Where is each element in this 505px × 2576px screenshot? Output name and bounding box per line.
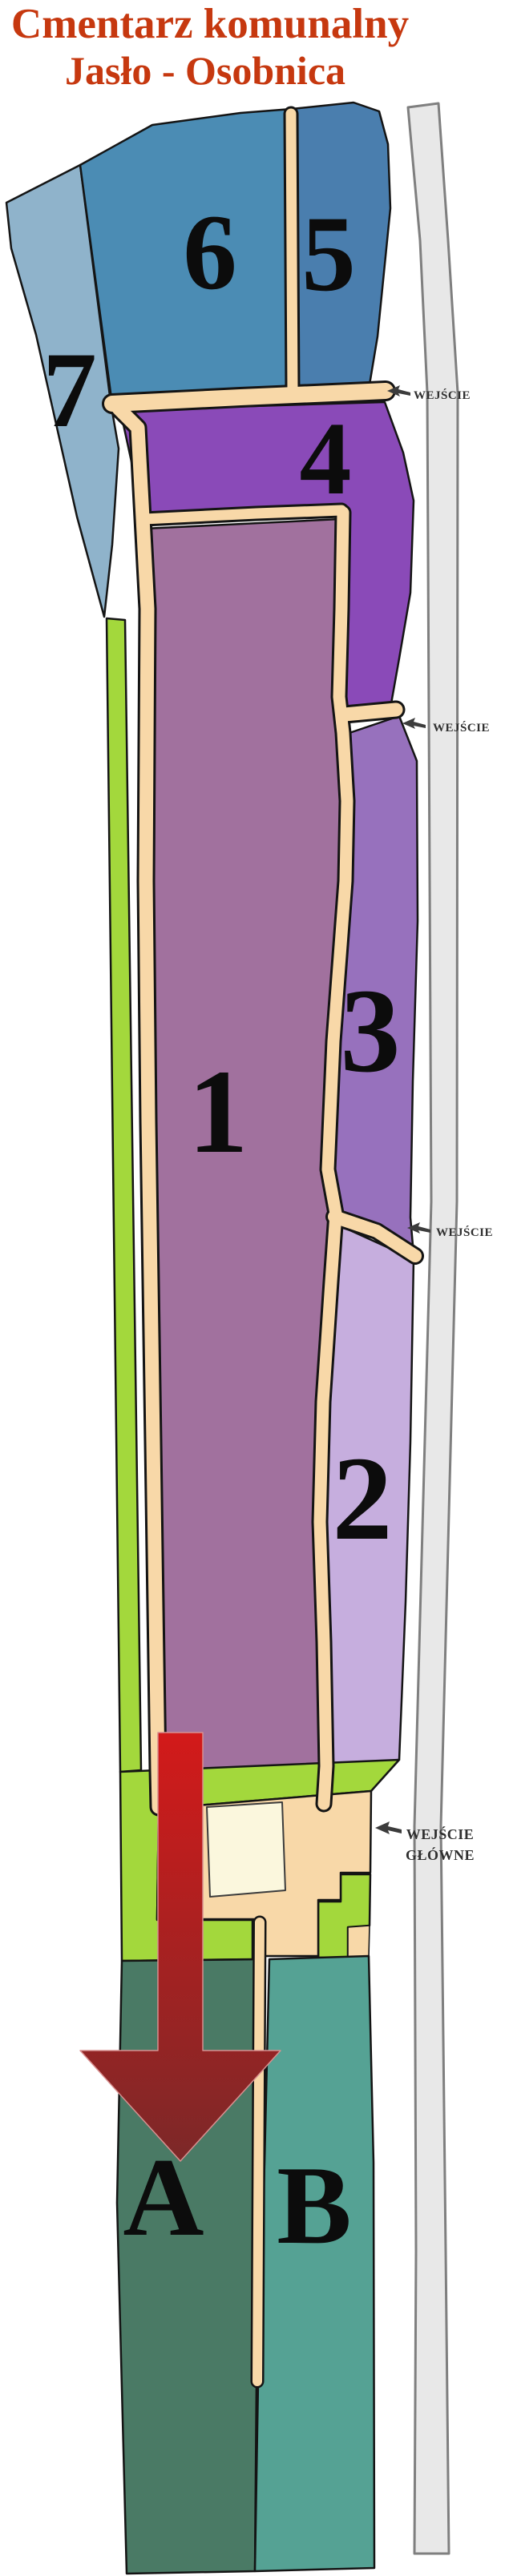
section-1-label: 1: [188, 1045, 248, 1178]
main-entrance-label-line1: WEJŚCIE: [406, 1825, 475, 1842]
section-3-label: 3: [341, 964, 401, 1097]
section-A-label: A: [123, 2135, 204, 2260]
map-canvas: 7 6 5 4 1 3 2 A B WEJŚCIE WEJŚCIE WEJŚCI…: [0, 0, 505, 2576]
section-7-label: 7: [42, 331, 97, 450]
entrance-2-arrow-icon: [402, 718, 426, 729]
plaza-step-path: [348, 1926, 370, 1958]
entrance-2-label: WEJŚCIE: [433, 721, 490, 735]
cemetery-map-page: 7 6 5 4 1 3 2 A B WEJŚCIE WEJŚCIE WEJŚCI…: [0, 0, 505, 2576]
entrance-3-label: WEJŚCIE: [436, 1226, 493, 1239]
section-6-label: 6: [183, 193, 237, 312]
main-entrance-label-line2: GŁÓWNE: [406, 1846, 475, 1863]
section-4-label: 4: [300, 401, 352, 517]
road: [408, 103, 458, 2554]
main-entrance-marker: [375, 1821, 402, 1834]
entrance-1-label: WEJŚCIE: [414, 388, 471, 402]
main-entrance-arrow-icon: [375, 1821, 402, 1834]
green-strip-left: [107, 618, 141, 1772]
entrance-2-marker: [402, 718, 426, 729]
map-title-line2: Jasło - Osobnica: [65, 48, 345, 93]
map-title-line1: Cmentarz komunalny: [11, 1, 409, 47]
entrance-building: [207, 1802, 285, 1897]
section-5-label: 5: [301, 195, 356, 314]
section-2-label: 2: [333, 1432, 393, 1565]
section-B-label: B: [277, 2143, 351, 2268]
